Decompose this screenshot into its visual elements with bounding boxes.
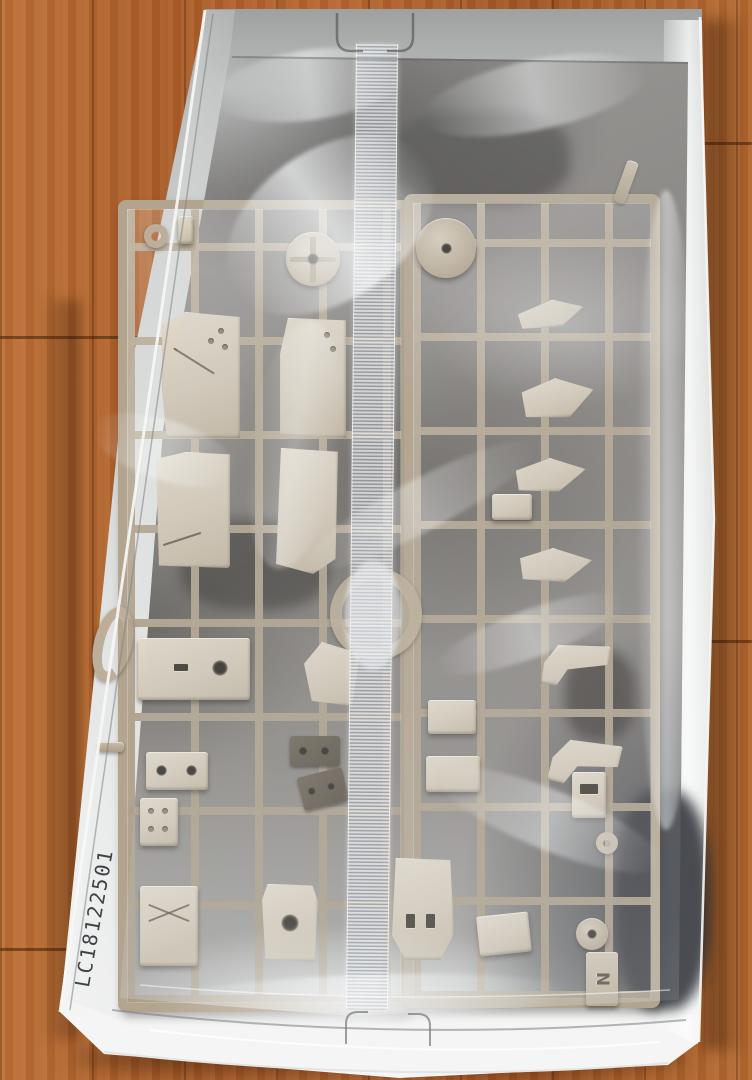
part-detail: [173, 347, 215, 374]
track-link-part: [290, 736, 340, 766]
part-hole: [320, 746, 330, 756]
hull-plate-part: [162, 312, 240, 438]
part-slot: [426, 914, 435, 928]
hatch-part: [140, 886, 198, 966]
disc-part: [416, 218, 476, 278]
part-detail: [162, 808, 168, 814]
disc-hole: [441, 243, 452, 254]
part-detail: [222, 344, 228, 350]
part-slot: [406, 914, 415, 928]
part-detail: [208, 338, 214, 344]
part-hole: [186, 765, 197, 776]
part-slot: [174, 664, 188, 671]
part-hole: [298, 746, 308, 756]
sprue-letter-tab: N: [586, 952, 618, 1006]
plate-part: [140, 798, 178, 846]
small-part: [178, 216, 193, 244]
part-detail: [148, 808, 154, 814]
plate-part: [428, 700, 476, 734]
box-part: [572, 772, 606, 818]
hull-plate-part: [276, 448, 338, 574]
plate-part: [492, 494, 532, 520]
ring-part: [596, 832, 618, 854]
part-hole: [306, 786, 317, 797]
sprue-letter: N: [592, 972, 612, 986]
part-hole: [212, 660, 228, 676]
hull-plate-part: [156, 452, 230, 568]
wheel-hole: [307, 253, 319, 265]
runner-stub: [98, 742, 124, 752]
part-detail: [162, 826, 168, 832]
part-slot: [580, 784, 598, 794]
part-detail: [163, 532, 202, 546]
turret-part: [262, 884, 318, 962]
plate-part: [476, 911, 532, 956]
part-hole: [587, 929, 597, 939]
mantlet-part: [138, 638, 250, 700]
part-hole: [156, 765, 167, 776]
shadow-blob: [390, 110, 570, 205]
hull-plate-part: [280, 318, 346, 438]
part-hole: [326, 781, 337, 792]
plate-part: [426, 756, 480, 792]
bag-seam-bulge: [344, 560, 402, 670]
part-detail: [324, 332, 330, 338]
part-detail: [218, 328, 224, 334]
road-wheel-part: [286, 232, 340, 286]
gearbox-part: [392, 858, 454, 960]
bracket-part: [146, 752, 208, 790]
part-detail: [148, 826, 154, 832]
ring-part: [144, 224, 168, 248]
pulley-part: [576, 918, 608, 950]
photo-model-kit-box: N LC18122501: [0, 0, 752, 1080]
part-detail: [330, 346, 336, 352]
part-hole: [281, 914, 299, 932]
